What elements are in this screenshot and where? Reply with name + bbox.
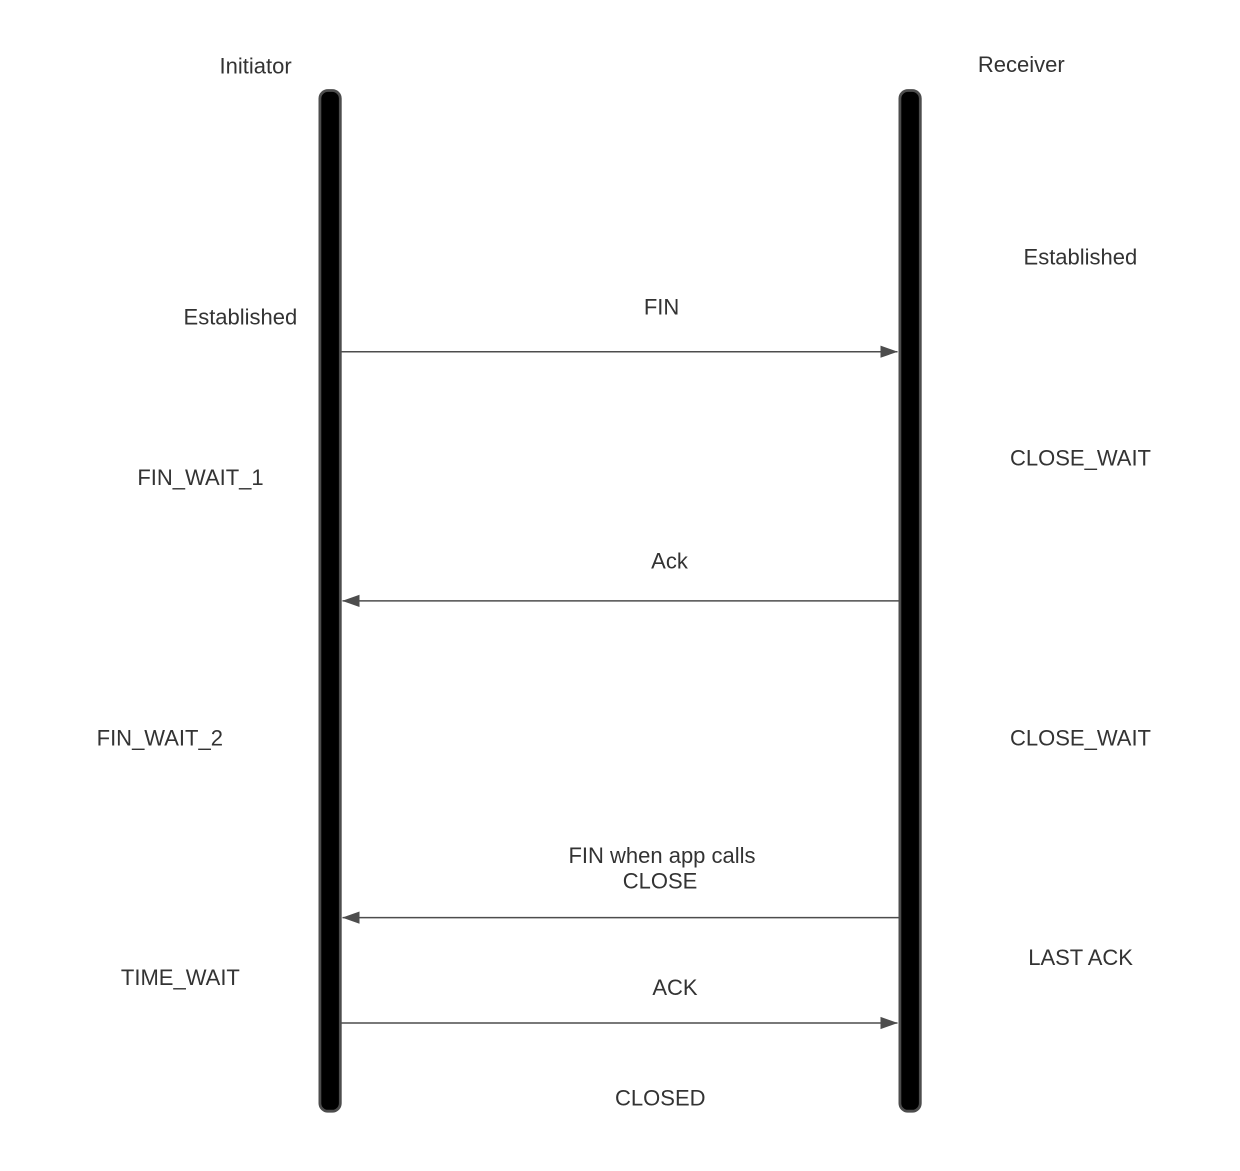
svg-text:CLOSE_WAIT: CLOSE_WAIT: [1010, 726, 1151, 751]
svg-text:Initiator: Initiator: [220, 54, 292, 79]
svg-text:FIN when app calls: FIN when app calls: [568, 843, 755, 868]
svg-text:CLOSED: CLOSED: [615, 1085, 705, 1110]
svg-text:Established: Established: [1024, 245, 1138, 270]
svg-text:CLOSE: CLOSE: [623, 869, 698, 894]
svg-text:TIME_WAIT: TIME_WAIT: [121, 965, 240, 990]
svg-text:FIN_WAIT_2: FIN_WAIT_2: [97, 726, 223, 751]
svg-text:Receiver: Receiver: [978, 52, 1065, 77]
svg-text:Established: Established: [184, 305, 298, 330]
svg-text:FIN: FIN: [644, 295, 679, 320]
svg-text:ACK: ACK: [652, 975, 698, 1000]
svg-text:CLOSE_WAIT: CLOSE_WAIT: [1010, 446, 1151, 471]
svg-text:FIN_WAIT_1: FIN_WAIT_1: [137, 465, 263, 490]
svg-text:Ack: Ack: [651, 548, 689, 573]
svg-text:LAST ACK: LAST ACK: [1028, 945, 1133, 970]
